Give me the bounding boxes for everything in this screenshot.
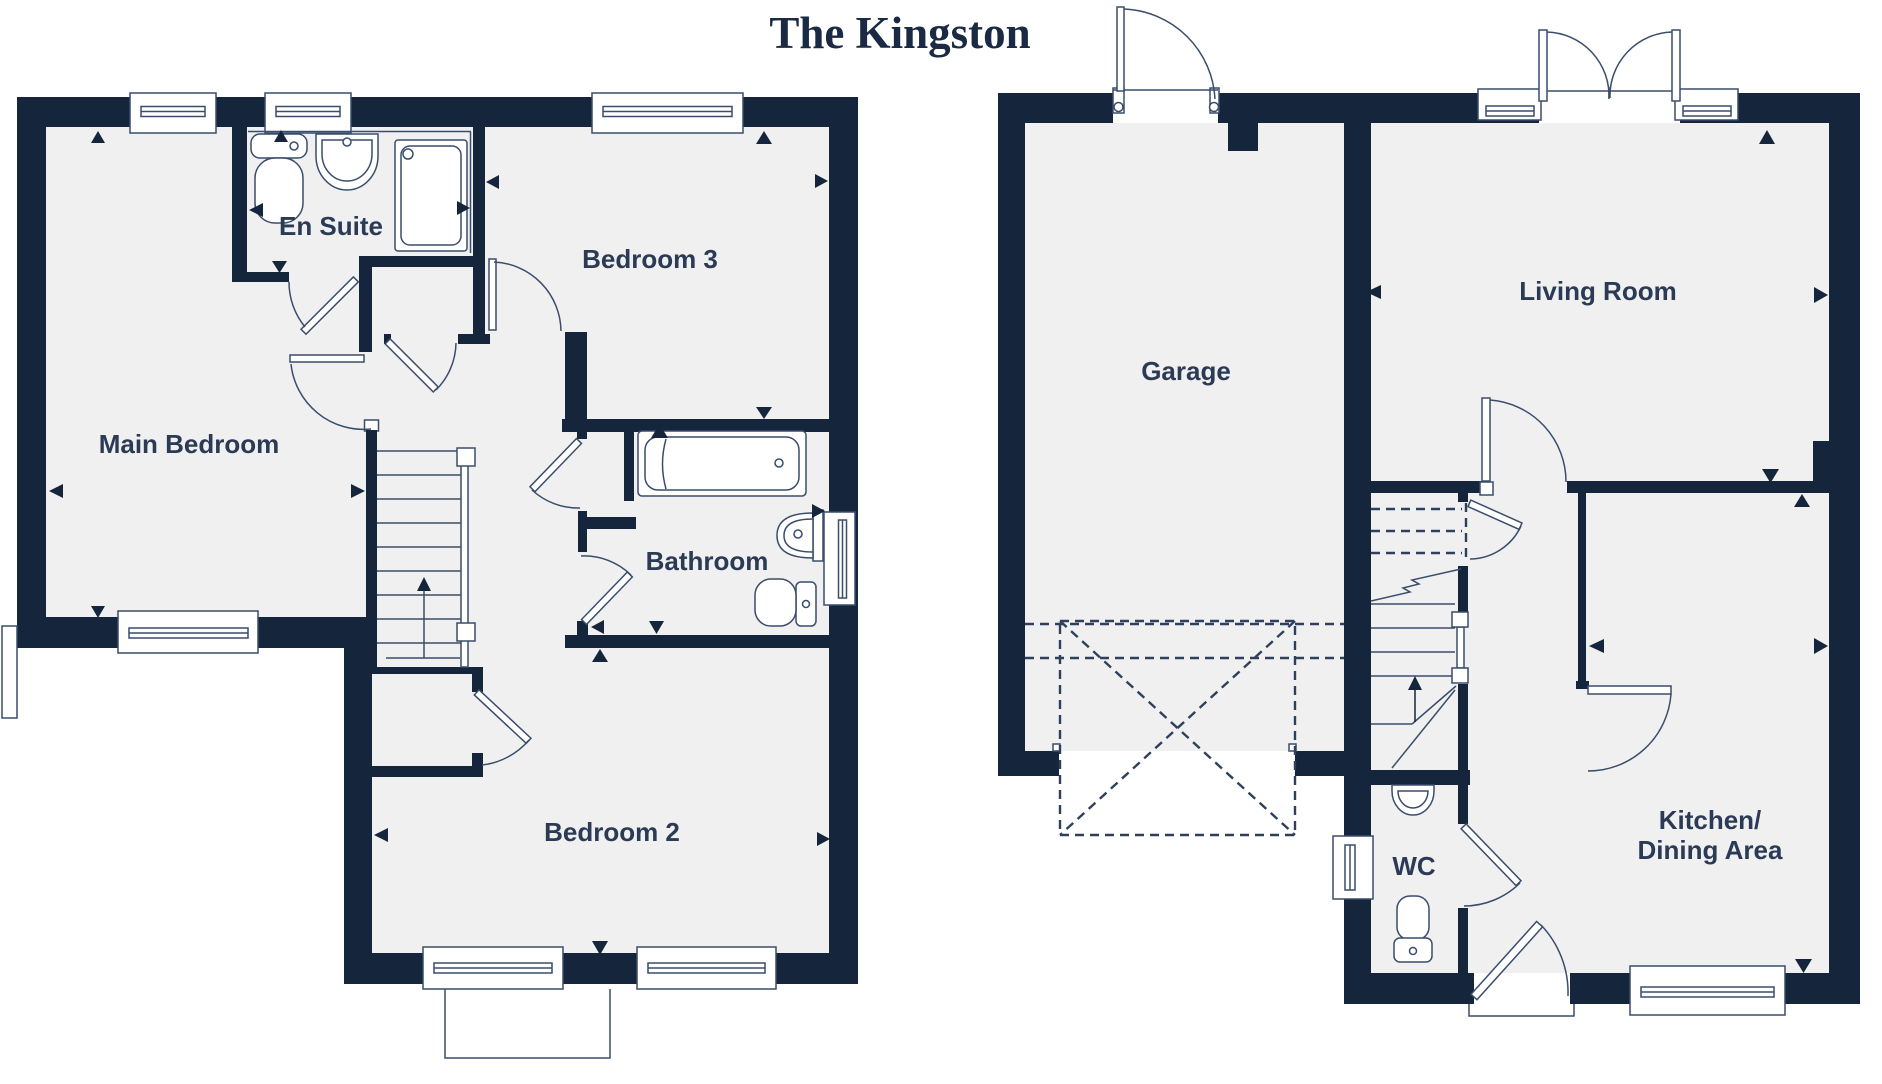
svg-text:The Kingston: The Kingston — [769, 8, 1030, 58]
svg-text:Living Room: Living Room — [1519, 276, 1676, 306]
svg-text:Main Bedroom: Main Bedroom — [99, 429, 280, 459]
svg-text:Dining Area: Dining Area — [1638, 835, 1783, 865]
svg-text:Bedroom 3: Bedroom 3 — [582, 244, 718, 274]
svg-text:WC: WC — [1392, 851, 1436, 881]
svg-text:En Suite: En Suite — [279, 211, 383, 241]
svg-text:Garage: Garage — [1141, 356, 1231, 386]
svg-text:Kitchen/: Kitchen/ — [1659, 805, 1762, 835]
svg-text:Bedroom 2: Bedroom 2 — [544, 817, 680, 847]
svg-text:Bathroom: Bathroom — [646, 546, 769, 576]
